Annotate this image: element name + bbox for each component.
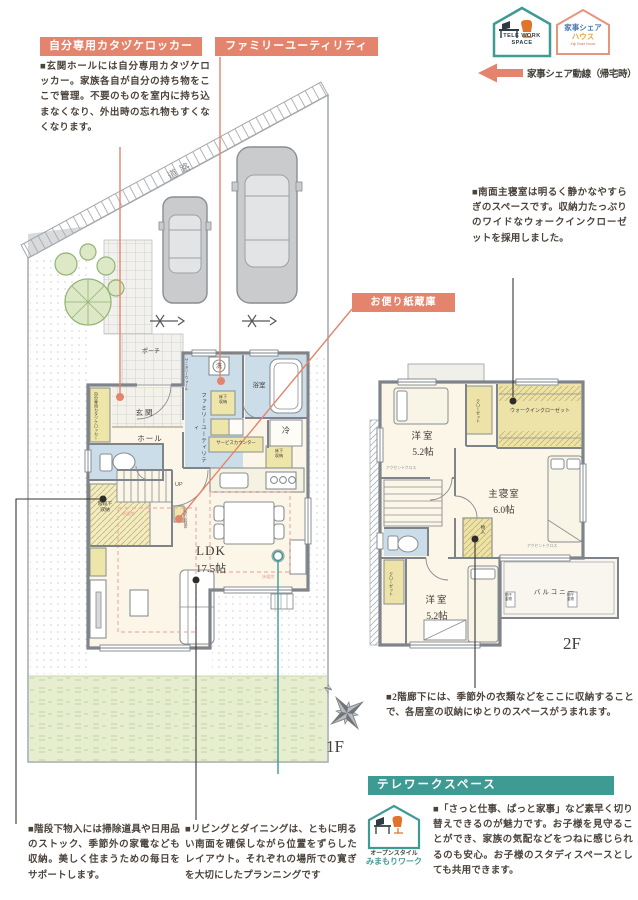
- ac-outdoor-unit: [271, 594, 293, 609]
- room-label-ldk-size: 17.5帖: [185, 560, 237, 576]
- accent-wall-label2: アクセントクロス: [527, 544, 557, 549]
- room-label-hall: ホール: [130, 433, 170, 444]
- room-label-2f-room-b-size: 5.2帖: [411, 608, 463, 622]
- room-label-washer: 洗: [211, 361, 227, 370]
- mimamori-badge-line2: みまもりワーク: [357, 856, 431, 867]
- room-label-closet-b: クローゼット: [388, 564, 394, 604]
- note-under-stair: ■階段下物入には掃除道具や日用品のストック、季節外の家電なども収納。美しく住まう…: [28, 823, 180, 884]
- callout-mail-storage: お便り紙蔵庫: [352, 293, 455, 312]
- callout-telework-space: テレワークスペース: [368, 776, 614, 795]
- toilet: [398, 536, 418, 552]
- floor-label-1f: 1F: [326, 737, 344, 757]
- room-label-2f-room-b: 洋室: [411, 592, 463, 606]
- note-hall-2f: ■2階廊下には、季節外の衣類などをここに収納することで、各居室の収納にゆとりのス…: [386, 691, 634, 721]
- car-icon: [232, 147, 302, 303]
- room-label-2f-room-a-size: 5.2帖: [397, 444, 449, 458]
- mimamori-work-badge-icon: [369, 806, 419, 848]
- room-label-floor-storage2: 床下収納: [273, 448, 285, 458]
- room-label-floor-storage: 床下収納: [217, 394, 229, 404]
- floor-heating-label: 床暖房: [122, 511, 135, 517]
- closet-b: [384, 560, 404, 604]
- laundry-fitting-label: 物干金物: [504, 594, 513, 602]
- flyer-page: 自分専用カタヅケロッカー ■玄関ホールには自分専用カタヅケロッカー。家族各自が自…: [0, 0, 638, 900]
- room-label-sanitary-wall: サニタリーウォール: [185, 357, 190, 391]
- note-telework: ■「さっと仕事、ぱっと家事」など素早く切り替えできるのが魅力です。お子様を見守る…: [433, 803, 633, 879]
- side-table: [130, 590, 148, 616]
- telework-counter: [290, 540, 306, 574]
- mail-storage-small-label: お便り紙蔵庫: [184, 502, 189, 534]
- telework-house-badge-icon: [494, 8, 550, 56]
- kaji-badge-line2: ハウス: [557, 31, 609, 42]
- room-label-service-counter: サービスカウンター: [211, 440, 261, 446]
- bathtub: [270, 359, 302, 413]
- room-label-entrance: 玄関: [128, 407, 162, 418]
- room-label-master: 主寝室: [478, 486, 530, 500]
- callout-family-utility: ファミリーユーティリティ: [215, 37, 378, 56]
- car-icon: [159, 197, 211, 303]
- room-label-storage: 物入: [480, 521, 486, 537]
- room-label-ldk: LDK: [185, 543, 237, 559]
- room-label-under-stair: 階段下収納: [96, 502, 114, 513]
- floor-heating-label2: 床暖房: [262, 574, 275, 580]
- toilet: [113, 453, 135, 471]
- callout-personal-locker: 自分専用カタヅケロッカー: [40, 37, 202, 56]
- floor-label-2f: 2F: [563, 634, 581, 654]
- note-personal-locker: ■玄関ホールには自分専用カタヅケロッカー。家族各自が自分の持ち物をここで管理。不…: [40, 60, 210, 136]
- room-label-master-size: 6.0帖: [478, 502, 530, 516]
- dining-table: [224, 502, 274, 544]
- room-label-bath: 浴室: [248, 379, 270, 389]
- kaji-badge-sub: Kaji Share House: [557, 42, 609, 46]
- room-label-porch: ポーチ: [135, 346, 167, 355]
- room-label-closet-a: クローゼット: [475, 390, 481, 432]
- room-label-balcony: バルコニー: [515, 586, 595, 596]
- flow-arrow-icon: [478, 64, 523, 83]
- room-label-locker: 自分専用カタヅケロッカー: [93, 391, 99, 441]
- room-label-wic: ウォークインクローゼット: [500, 407, 580, 414]
- telework-badge-line2: SPACE: [494, 40, 550, 46]
- stairs-up-label: UP: [175, 482, 183, 488]
- tv: [96, 592, 101, 628]
- room-label-fridge: 冷: [278, 425, 294, 436]
- accent-wall-label: アクセントクロス: [386, 466, 416, 471]
- room-label-family-utility: ファミリーユーティリティ: [191, 390, 207, 466]
- note-master-bedroom: ■南面主寝室は明るく静かなやすらぎのスペースです。収納力たっぷりのワイドなウォー…: [472, 186, 627, 247]
- laundry-fitting-label2: 物干金物: [566, 594, 575, 602]
- room-label-2f-room-a: 洋室: [397, 428, 449, 442]
- note-living-dining: ■リビングとダイニングは、ともに明るい南面を確保しながら位置をずらしたレイアウト…: [185, 823, 357, 884]
- flow-legend-label: 家事シェア動線（帰宅時）: [527, 66, 638, 80]
- telework-badge-line1: TELE WORK: [494, 33, 550, 39]
